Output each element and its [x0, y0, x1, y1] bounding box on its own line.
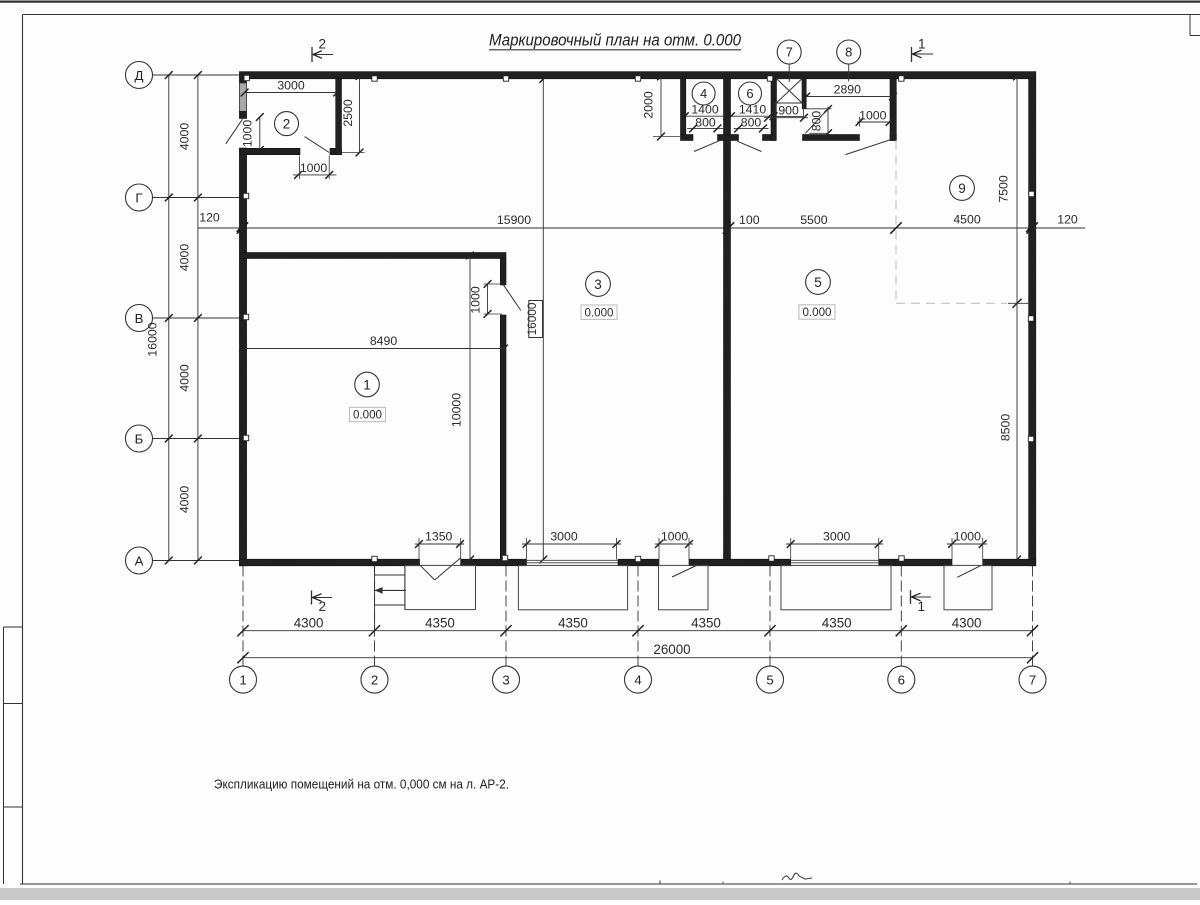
svg-text:1: 1: [918, 37, 926, 52]
svg-text:6: 6: [898, 672, 905, 687]
svg-text:4000: 4000: [178, 244, 192, 272]
svg-text:1: 1: [363, 377, 371, 392]
svg-text:4300: 4300: [294, 616, 324, 631]
svg-text:Маркировочный план на отм. 0.0: Маркировочный план на отм. 0.000: [489, 32, 742, 50]
svg-text:А: А: [135, 553, 144, 568]
svg-text:4350: 4350: [558, 616, 588, 631]
svg-text:800: 800: [695, 115, 716, 129]
svg-text:В: В: [135, 311, 144, 326]
svg-text:2890: 2890: [834, 82, 862, 96]
svg-text:3000: 3000: [823, 530, 851, 544]
svg-text:3: 3: [502, 672, 509, 687]
svg-text:2: 2: [371, 672, 378, 687]
svg-text:2500: 2500: [341, 99, 355, 127]
svg-text:1: 1: [239, 672, 246, 687]
svg-text:4350: 4350: [822, 616, 852, 631]
svg-text:15900: 15900: [497, 213, 531, 227]
svg-text:1: 1: [918, 599, 926, 614]
svg-text:Экспликацию помещений на отм.: Экспликацию помещений на отм. 0,000 см н…: [214, 778, 509, 792]
svg-text:4: 4: [634, 672, 641, 687]
svg-text:1000: 1000: [859, 108, 887, 122]
svg-text:4: 4: [700, 86, 707, 101]
svg-text:8500: 8500: [999, 414, 1013, 442]
svg-text:4350: 4350: [425, 616, 455, 631]
svg-text:4000: 4000: [178, 364, 192, 392]
svg-text:0.000: 0.000: [353, 409, 382, 422]
svg-text:3000: 3000: [277, 79, 305, 93]
svg-text:100: 100: [739, 213, 760, 227]
svg-text:5: 5: [766, 672, 773, 687]
svg-text:8490: 8490: [370, 334, 398, 348]
svg-text:2: 2: [319, 37, 327, 52]
svg-text:6: 6: [746, 86, 753, 101]
svg-text:1000: 1000: [300, 161, 328, 175]
svg-text:9: 9: [958, 181, 966, 196]
svg-text:1000: 1000: [469, 286, 483, 314]
svg-text:1000: 1000: [241, 120, 255, 148]
svg-text:16000: 16000: [525, 302, 539, 335]
svg-text:800: 800: [741, 115, 762, 129]
svg-text:8: 8: [845, 45, 852, 60]
svg-text:4000: 4000: [178, 123, 192, 151]
svg-text:4350: 4350: [691, 616, 721, 631]
svg-text:Б: Б: [135, 431, 144, 446]
svg-text:3: 3: [594, 277, 602, 292]
svg-text:4300: 4300: [952, 616, 982, 631]
svg-text:1000: 1000: [954, 530, 982, 544]
svg-text:2: 2: [319, 599, 327, 614]
svg-text:3000: 3000: [550, 530, 578, 544]
svg-text:900: 900: [778, 104, 799, 118]
svg-text:5500: 5500: [800, 213, 828, 227]
svg-text:16000: 16000: [146, 322, 160, 356]
svg-text:Г: Г: [135, 190, 142, 205]
svg-text:800: 800: [810, 111, 824, 132]
svg-text:26000: 26000: [653, 642, 690, 657]
svg-text:4000: 4000: [178, 486, 192, 514]
svg-text:2: 2: [283, 117, 291, 132]
svg-text:1000: 1000: [661, 530, 689, 544]
svg-text:7500: 7500: [997, 175, 1011, 203]
svg-text:7: 7: [1029, 672, 1036, 687]
svg-text:4500: 4500: [953, 213, 981, 227]
svg-text:Д: Д: [135, 68, 144, 83]
svg-text:5: 5: [814, 275, 822, 290]
svg-text:10000: 10000: [450, 393, 464, 427]
svg-text:2000: 2000: [642, 91, 656, 119]
svg-text:120: 120: [199, 211, 220, 225]
svg-text:120: 120: [1057, 213, 1078, 227]
svg-text:0.000: 0.000: [802, 306, 831, 319]
svg-text:7: 7: [786, 45, 793, 60]
svg-text:1350: 1350: [425, 530, 453, 544]
svg-text:0.000: 0.000: [584, 306, 613, 319]
